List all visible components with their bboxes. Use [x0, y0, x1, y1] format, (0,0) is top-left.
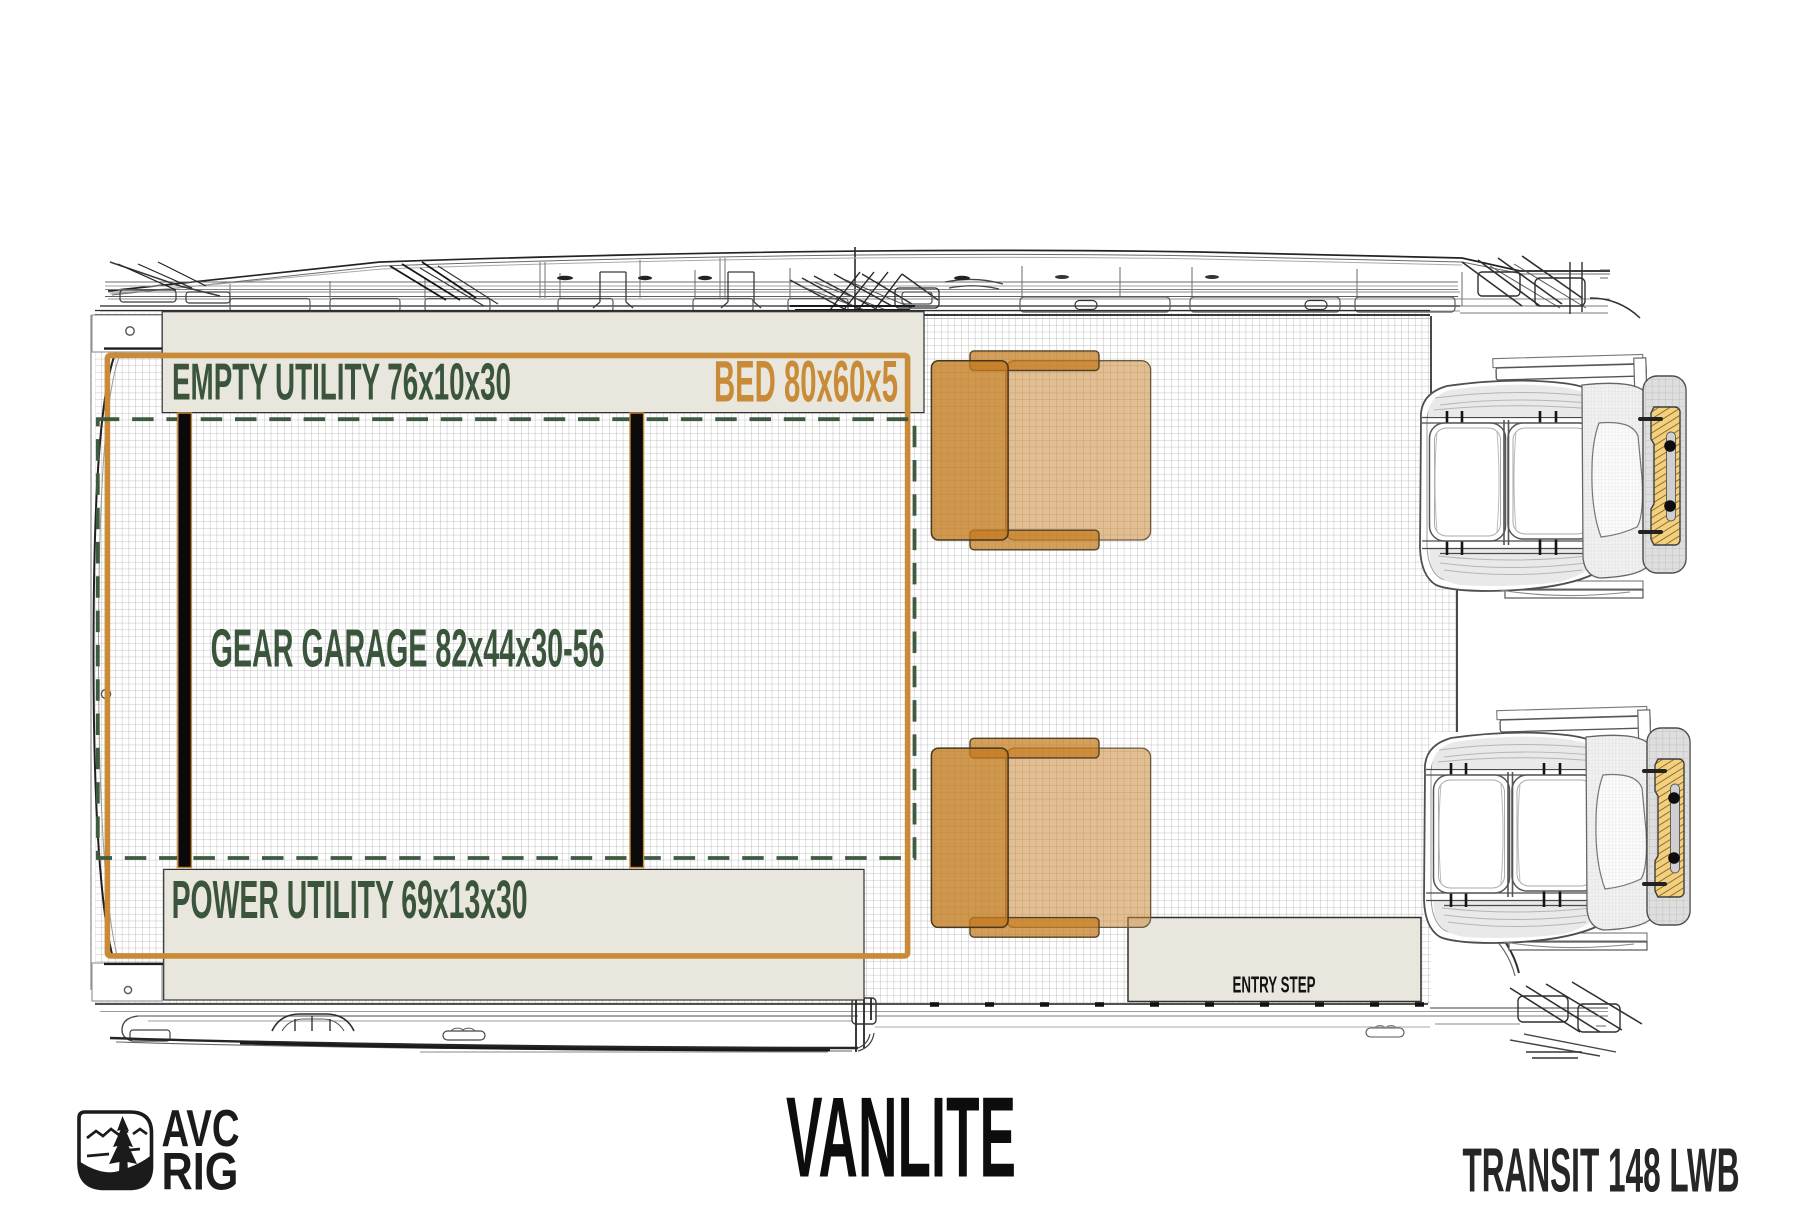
svg-text:POWER UTILITY 69x13x30: POWER UTILITY 69x13x30 — [172, 871, 528, 930]
svg-text:TRANSIT 148 LWB: TRANSIT 148 LWB — [1463, 1136, 1740, 1206]
svg-text:EMPTY UTILITY 76x10x30: EMPTY UTILITY 76x10x30 — [172, 353, 511, 411]
svg-text:GEAR GARAGE 82x44x30-56: GEAR GARAGE 82x44x30-56 — [211, 618, 605, 678]
svg-text:ENTRY STEP: ENTRY STEP — [1233, 972, 1316, 998]
svg-text:BED 80x60x5: BED 80x60x5 — [714, 349, 898, 414]
svg-text:VANLITE: VANLITE — [786, 1074, 1016, 1202]
svg-text:RIG: RIG — [162, 1142, 239, 1201]
